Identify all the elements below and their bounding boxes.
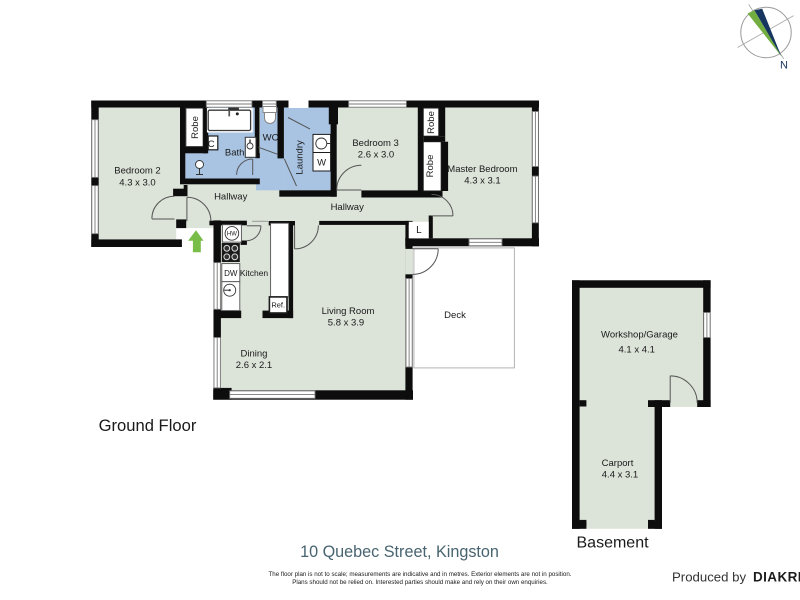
- svg-text:Ground Floor: Ground Floor: [99, 416, 197, 435]
- svg-text:Produced by: Produced by: [672, 570, 746, 585]
- svg-text:4.1 x 4.1: 4.1 x 4.1: [618, 344, 654, 355]
- svg-text:The floor plan is not to scale: The floor plan is not to scale; measurem…: [269, 571, 572, 578]
- svg-text:Plans should not be relied on.: Plans should not be relied on. Intereste…: [292, 579, 548, 586]
- svg-text:Robe: Robe: [190, 116, 201, 139]
- svg-text:HW: HW: [227, 232, 237, 238]
- svg-text:DIAKRIT: DIAKRIT: [753, 570, 800, 585]
- svg-text:Master Bedroom: Master Bedroom: [447, 164, 517, 175]
- svg-text:N: N: [780, 60, 788, 72]
- svg-text:Hallway: Hallway: [331, 202, 365, 213]
- svg-text:4.3 x 3.0: 4.3 x 3.0: [119, 178, 155, 189]
- svg-text:Bath: Bath: [225, 148, 245, 159]
- svg-text:4.4 x 3.1: 4.4 x 3.1: [602, 469, 638, 480]
- svg-text:Ref.: Ref.: [271, 301, 285, 310]
- svg-text:Living Room: Living Room: [322, 306, 375, 317]
- svg-text:Workshop/Garage: Workshop/Garage: [601, 329, 678, 340]
- svg-text:C: C: [208, 139, 215, 150]
- svg-text:2.6 x 2.1: 2.6 x 2.1: [236, 360, 272, 371]
- svg-text:Robe: Robe: [426, 111, 437, 134]
- svg-text:Hallway: Hallway: [214, 192, 248, 203]
- svg-text:Kitchen: Kitchen: [240, 268, 269, 278]
- svg-text:Bedroom 3: Bedroom 3: [352, 138, 398, 149]
- svg-text:2.6 x 3.0: 2.6 x 3.0: [358, 150, 394, 161]
- svg-text:Robe: Robe: [425, 155, 436, 178]
- svg-text:Basement: Basement: [577, 534, 650, 551]
- svg-text:Carport: Carport: [602, 458, 634, 469]
- svg-text:WC: WC: [263, 133, 279, 144]
- svg-text:DW: DW: [224, 269, 238, 278]
- svg-text:5.8 x 3.9: 5.8 x 3.9: [328, 318, 364, 329]
- svg-text:10 Quebec Street, Kingston: 10 Quebec Street, Kingston: [300, 543, 499, 561]
- svg-text:L: L: [416, 225, 422, 236]
- svg-text:4.3 x 3.1: 4.3 x 3.1: [464, 176, 500, 187]
- svg-text:Laundry: Laundry: [295, 140, 306, 175]
- svg-text:Dining: Dining: [241, 349, 268, 360]
- svg-text:Deck: Deck: [444, 310, 466, 321]
- svg-text:Bedroom 2: Bedroom 2: [114, 166, 160, 177]
- svg-text:W: W: [317, 157, 326, 168]
